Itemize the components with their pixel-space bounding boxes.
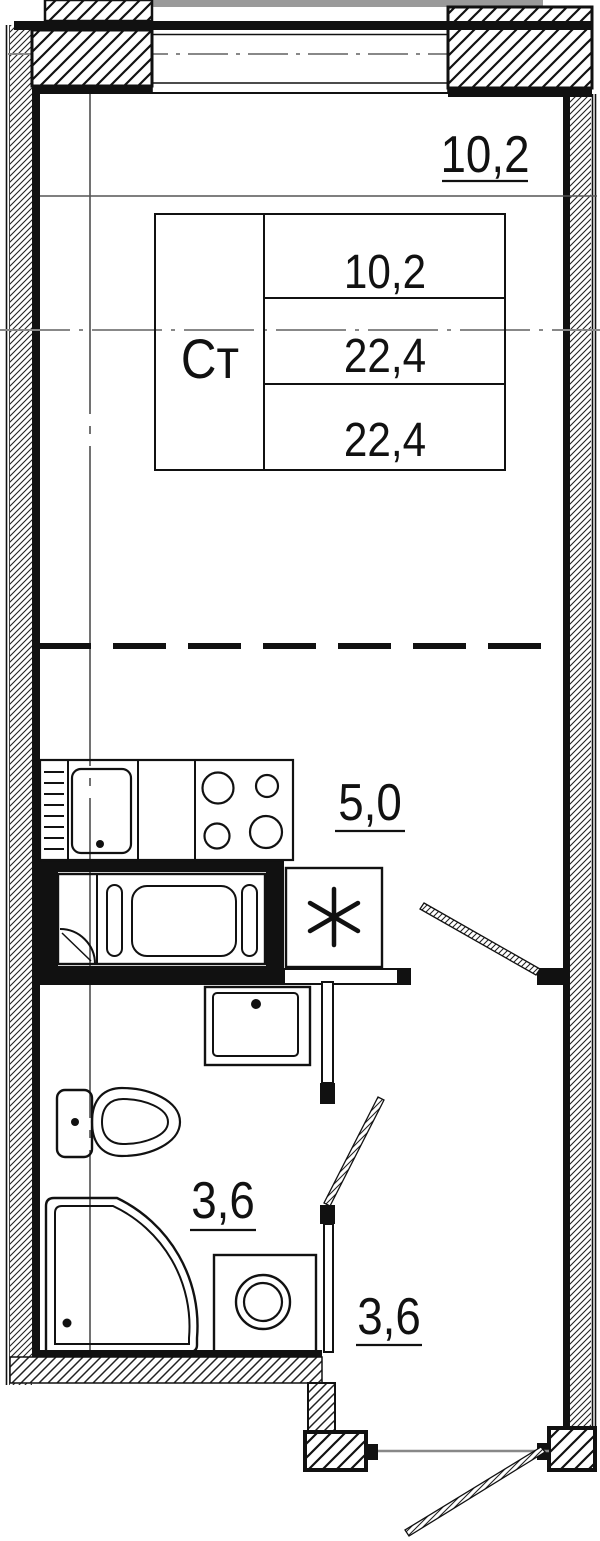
table-value-living: 10,2 xyxy=(344,244,426,298)
drain-dot xyxy=(251,999,261,1009)
living-room-area-label: 10,2 xyxy=(440,126,529,183)
entrance-bay-wall xyxy=(308,1383,335,1432)
hallway-area-text: 3,6 xyxy=(357,1288,421,1345)
pier-left xyxy=(32,30,152,86)
exterior-wall-right xyxy=(563,94,596,1428)
bathroom-north-wall xyxy=(40,966,284,985)
wall-hatch xyxy=(10,25,32,1385)
table-value-total: 22,4 xyxy=(344,328,426,382)
pier-right xyxy=(448,7,592,88)
kitchen-area-label: 5,0 xyxy=(335,774,405,831)
interior-door-post-right xyxy=(537,968,563,985)
wall-inner-face xyxy=(563,94,570,1428)
bathroom-area-text: 3,6 xyxy=(191,1172,255,1229)
wall-inner-face xyxy=(32,92,40,1357)
drain-dot xyxy=(63,1319,72,1328)
door-post xyxy=(320,1083,335,1104)
exterior-wall-left xyxy=(7,25,41,1385)
bottom-wall-bathroom xyxy=(10,1350,322,1383)
door-post xyxy=(320,1205,335,1224)
drain-dot xyxy=(96,840,104,848)
upper-wall-block-left xyxy=(45,0,152,21)
wall-hatch xyxy=(570,94,591,1428)
unit-type-cell: Ст xyxy=(181,328,239,391)
living-area-text: 10,2 xyxy=(440,126,529,183)
kitchen-area-text: 5,0 xyxy=(338,774,402,831)
hallway-area-label: 3,6 xyxy=(356,1288,422,1345)
entrance-pier-left xyxy=(305,1432,378,1470)
floor-plan-drawing: Ст 10,2 22,4 22,4 10,2 5,0 3,6 3,6 xyxy=(0,0,600,1541)
bathroom-area-label: 3,6 xyxy=(190,1172,256,1230)
floor-plan-page: Ст 10,2 22,4 22,4 10,2 5,0 3,6 3,6 xyxy=(0,0,600,1541)
kitchen-return-counter xyxy=(284,968,410,985)
table-value-total-with-balcony: 22,4 xyxy=(344,412,426,466)
door-post xyxy=(366,1444,378,1460)
basin-partition-wall xyxy=(320,982,335,1104)
door-post xyxy=(397,968,410,985)
